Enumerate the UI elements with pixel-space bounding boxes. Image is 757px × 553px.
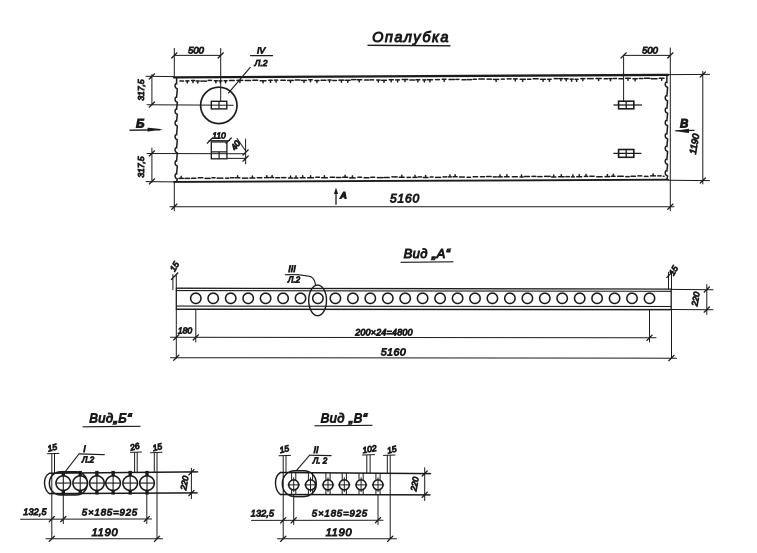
svg-text:110: 110 [212, 131, 226, 141]
svg-text:Л.2: Л.2 [287, 276, 301, 285]
svg-text:180: 180 [178, 326, 192, 336]
svg-text:В: В [680, 119, 688, 131]
svg-text:1190: 1190 [92, 527, 119, 539]
svg-text:220: 220 [689, 291, 702, 308]
svg-text:15: 15 [386, 444, 398, 456]
svg-text:102: 102 [362, 443, 378, 455]
svg-text:Вид„Б“: Вид„Б“ [89, 411, 132, 426]
svg-text:Вид „В“: Вид „В“ [321, 411, 368, 426]
svg-text:500: 500 [642, 46, 659, 57]
svg-text:15: 15 [151, 441, 163, 453]
svg-text:5160: 5160 [381, 347, 406, 359]
svg-text:40: 40 [229, 138, 243, 152]
svg-text:I: I [83, 444, 86, 454]
svg-text:II: II [313, 445, 319, 455]
svg-text:317,5: 317,5 [136, 79, 146, 101]
svg-text:Л.2: Л.2 [254, 58, 268, 68]
svg-text:5160: 5160 [390, 192, 420, 206]
svg-text:III: III [288, 264, 296, 274]
svg-text:15: 15 [46, 442, 58, 454]
svg-text:317,5: 317,5 [136, 156, 146, 178]
svg-text:1190: 1190 [688, 132, 703, 155]
svg-text:26: 26 [128, 441, 141, 453]
svg-text:IV: IV [257, 46, 266, 56]
svg-text:200×24=4800: 200×24=4800 [354, 328, 413, 338]
svg-text:220: 220 [178, 475, 191, 492]
svg-text:132,5: 132,5 [251, 509, 275, 519]
svg-text:15: 15 [278, 443, 290, 455]
svg-text:Л.2: Л.2 [81, 455, 95, 464]
svg-text:500: 500 [188, 46, 205, 57]
svg-text:Л. 2: Л. 2 [312, 457, 328, 466]
svg-text:Вид „А“: Вид „А“ [404, 246, 451, 261]
svg-text:1190: 1190 [326, 527, 353, 539]
svg-text:220: 220 [408, 476, 421, 493]
svg-text:Опалубка: Опалубка [372, 30, 450, 46]
svg-text:132,5: 132,5 [23, 507, 47, 517]
svg-text:Б: Б [136, 117, 145, 131]
svg-text:А: А [339, 191, 347, 202]
svg-text:5×185=925: 5×185=925 [82, 508, 138, 519]
svg-text:15: 15 [168, 260, 182, 273]
svg-text:5×185=925: 5×185=925 [312, 509, 368, 520]
